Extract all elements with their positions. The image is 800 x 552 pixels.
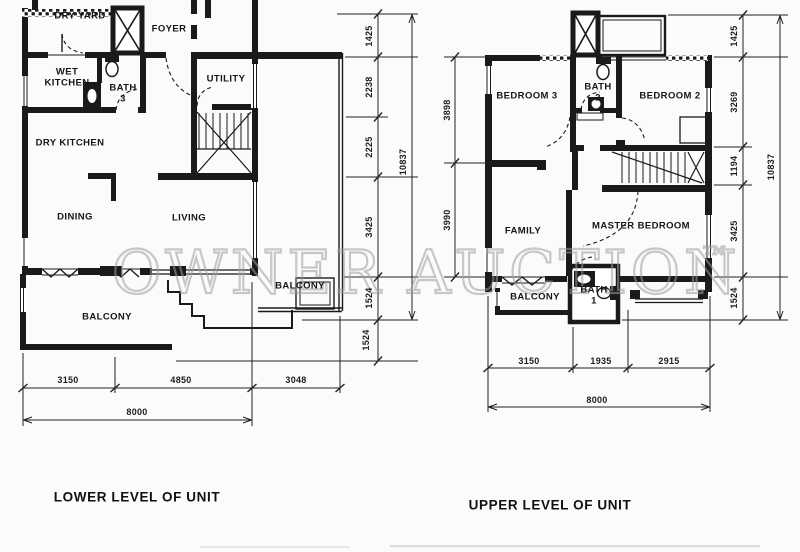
dim-lower-bottom-3048: 3048	[285, 375, 306, 385]
dim-lower-bottom-4850: 4850	[170, 375, 191, 385]
dim-upper-bottom-overall: 8000	[586, 395, 607, 405]
room-label-living: LIVING	[172, 214, 206, 225]
lower-stairs	[197, 112, 251, 173]
lower-shaft	[113, 8, 142, 53]
room-label-dry-yard: DRY YARD	[54, 12, 105, 23]
dim-upper-right-1425: 1425	[729, 25, 739, 46]
dim-lower-right-1524a: 1524	[364, 287, 374, 308]
dim-upper-right-3425: 3425	[729, 220, 739, 241]
dim-lower-right-1425: 1425	[364, 25, 374, 46]
dim-upper-right-1194: 1194	[729, 156, 739, 177]
dim-lower-right-3425: 3425	[364, 216, 374, 237]
dim-upper-right-overall: 10837	[766, 154, 776, 181]
upper-shaft	[573, 13, 665, 55]
dim-lower-right-2225: 2225	[364, 136, 374, 157]
room-label-family: FAMILY	[505, 227, 541, 238]
dim-lower-right-2238: 2238	[364, 76, 374, 97]
room-label-foyer: FOYER	[152, 25, 187, 36]
dim-lower-right-1524b: 1524	[361, 329, 371, 350]
dim-upper-bottom-3150: 3150	[518, 356, 539, 366]
upper-bedroom2-closet	[680, 117, 706, 143]
watermark-text: OWNER AUCTION	[112, 238, 741, 308]
dim-lower-bottom-overall: 8000	[126, 407, 147, 417]
dim-upper-bottom-2915: 2915	[658, 356, 679, 366]
room-label-utility: UTILITY	[207, 75, 246, 86]
dim-upper-right-1524: 1524	[729, 287, 739, 308]
room-label-balcony-upper: BALCONY	[510, 293, 560, 304]
room-label-balcony-right: BALCONY	[275, 282, 325, 293]
watermark-tm: ™	[700, 241, 730, 276]
room-label-wet-kitchen: WET KITCHEN	[40, 67, 94, 88]
room-label-bath-1: BATH 1	[577, 285, 611, 306]
dim-lower-right-overall: 10837	[398, 149, 408, 176]
floor-plan-page: OWNER AUCTION ™ DRY YARD FOYER WET KITCH…	[0, 0, 800, 552]
room-label-balcony-bottom: BALCONY	[82, 313, 132, 324]
lower-plan-title: LOWER LEVEL OF UNIT	[54, 490, 220, 505]
room-label-bath-3: BATH 3	[106, 83, 140, 104]
room-label-master-bedroom: MASTER BEDROOM	[592, 222, 690, 233]
upper-plan-title: UPPER LEVEL OF UNIT	[469, 498, 632, 513]
room-label-bedroom-3: BEDROOM 3	[496, 92, 558, 103]
dim-lower-bottom-3150: 3150	[57, 375, 78, 385]
dim-upper-left-3990: 3990	[442, 209, 452, 230]
dim-upper-bottom-1935: 1935	[590, 356, 611, 366]
dim-upper-right-3269: 3269	[729, 91, 739, 112]
dim-upper-left-3898: 3898	[442, 99, 452, 120]
watermark: OWNER AUCTION ™	[112, 238, 741, 308]
upper-stairs	[612, 152, 704, 183]
room-label-bath-2: BATH 2	[581, 82, 615, 103]
scan-artifacts	[200, 545, 760, 548]
room-label-dining: DINING	[57, 213, 93, 224]
room-label-dry-kitchen: DRY KITCHEN	[36, 139, 105, 150]
room-label-bedroom-2: BEDROOM 2	[639, 92, 701, 103]
